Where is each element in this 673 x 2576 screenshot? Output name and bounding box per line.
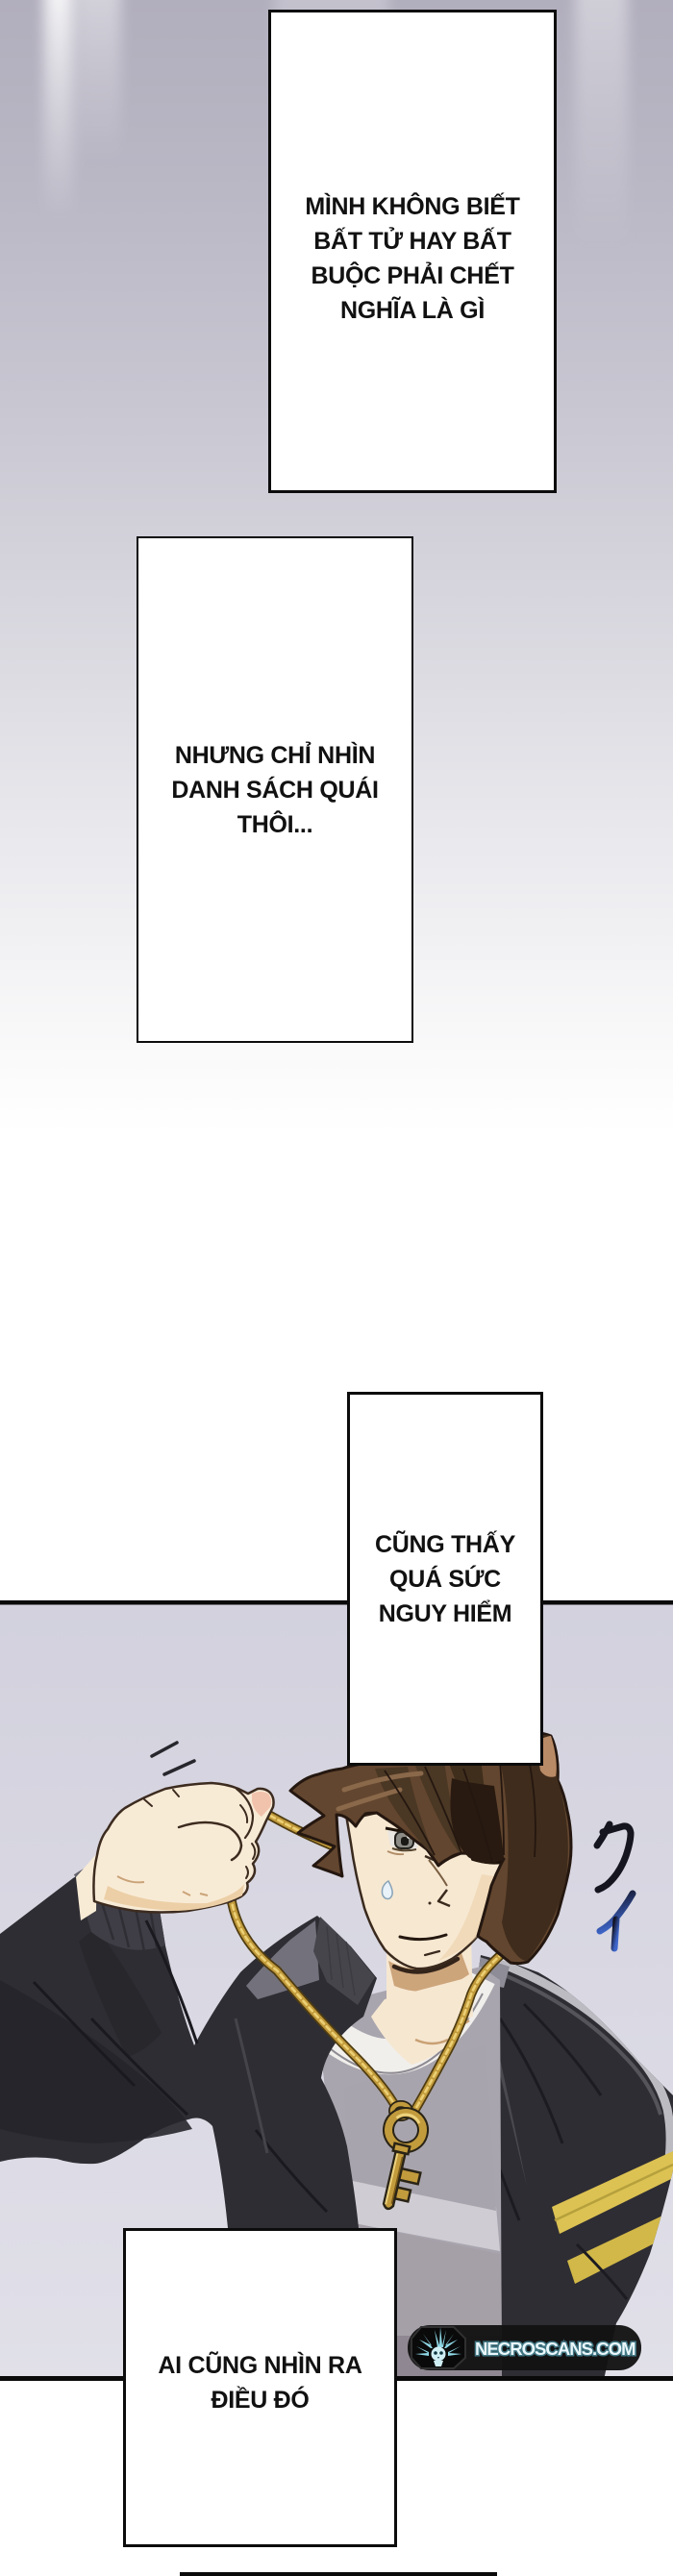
svg-text:NECROSCANS.COM: NECROSCANS.COM <box>475 2339 636 2359</box>
